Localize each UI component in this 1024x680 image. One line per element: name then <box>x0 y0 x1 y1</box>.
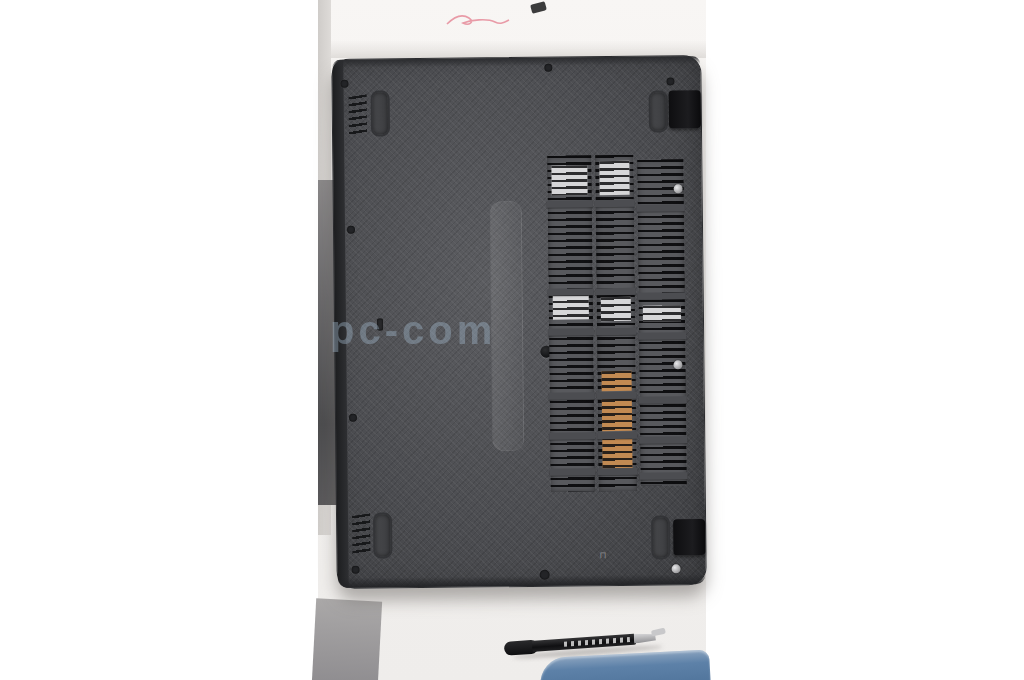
heatsink-copper-patch <box>602 437 632 469</box>
pink-scribble <box>443 8 513 32</box>
molded-marking: ⊓ <box>599 551 607 559</box>
vent-group-separator <box>598 468 638 475</box>
rubber-foot-bottom-left <box>373 512 392 558</box>
watermark-text: pc-com <box>330 308 690 356</box>
screw-bottom-right <box>672 564 681 573</box>
vent-highlight-patch <box>599 161 629 195</box>
vent-group-separator <box>639 396 687 404</box>
vent-group-separator <box>640 472 688 480</box>
screw-vent-lower-right <box>673 360 682 369</box>
vent-group-separator <box>547 200 593 207</box>
rubber-foot-bottom-right <box>651 515 670 559</box>
table-surface-corner <box>312 598 382 680</box>
screw-bottom-center <box>540 570 550 580</box>
heatsink-copper-patch <box>602 371 632 391</box>
photo-area: ⊓ pc-com <box>318 0 706 680</box>
vent-group-separator <box>549 432 595 439</box>
speaker-grille-bottom-left <box>352 513 370 556</box>
vent-group-separator <box>549 392 595 399</box>
small-dark-mark <box>530 1 547 14</box>
vent-group-separator <box>639 436 687 444</box>
vent-highlight-patch <box>551 165 587 195</box>
vent-group-separator <box>638 292 686 300</box>
vent-group-separator <box>597 432 637 439</box>
vent-group-separator <box>550 468 596 475</box>
vent-group-separator <box>637 204 685 212</box>
screw-bottom-left <box>352 566 360 574</box>
screw-vent-upper-right <box>674 184 683 193</box>
heatsink-copper-patch <box>602 399 632 431</box>
vent-group-separator <box>595 200 635 207</box>
vent-group-separator <box>548 288 594 295</box>
vent-group-separator <box>596 288 636 295</box>
pen-clip <box>651 628 666 637</box>
vent-group-separator <box>597 392 637 399</box>
hinge-cover-bottom-right <box>673 519 705 555</box>
photo-canvas: ⊓ pc-com <box>0 0 1024 680</box>
